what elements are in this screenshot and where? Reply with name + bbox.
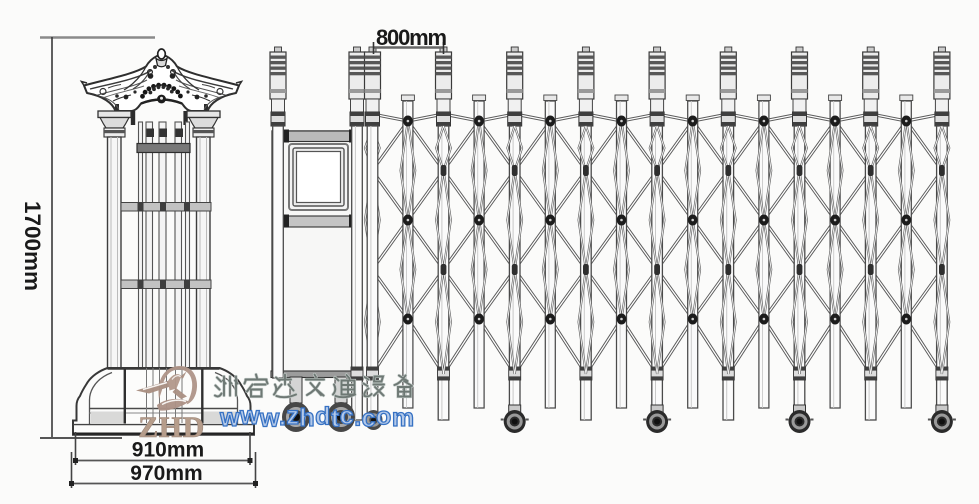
svg-text:1700mm: 1700mm [20,201,45,291]
svg-text:www.zhdtc.com: www.zhdtc.com [219,402,415,433]
svg-text:ZHD: ZHD [138,411,205,444]
svg-text:970mm: 970mm [130,462,202,485]
svg-text:800mm: 800mm [376,25,446,50]
